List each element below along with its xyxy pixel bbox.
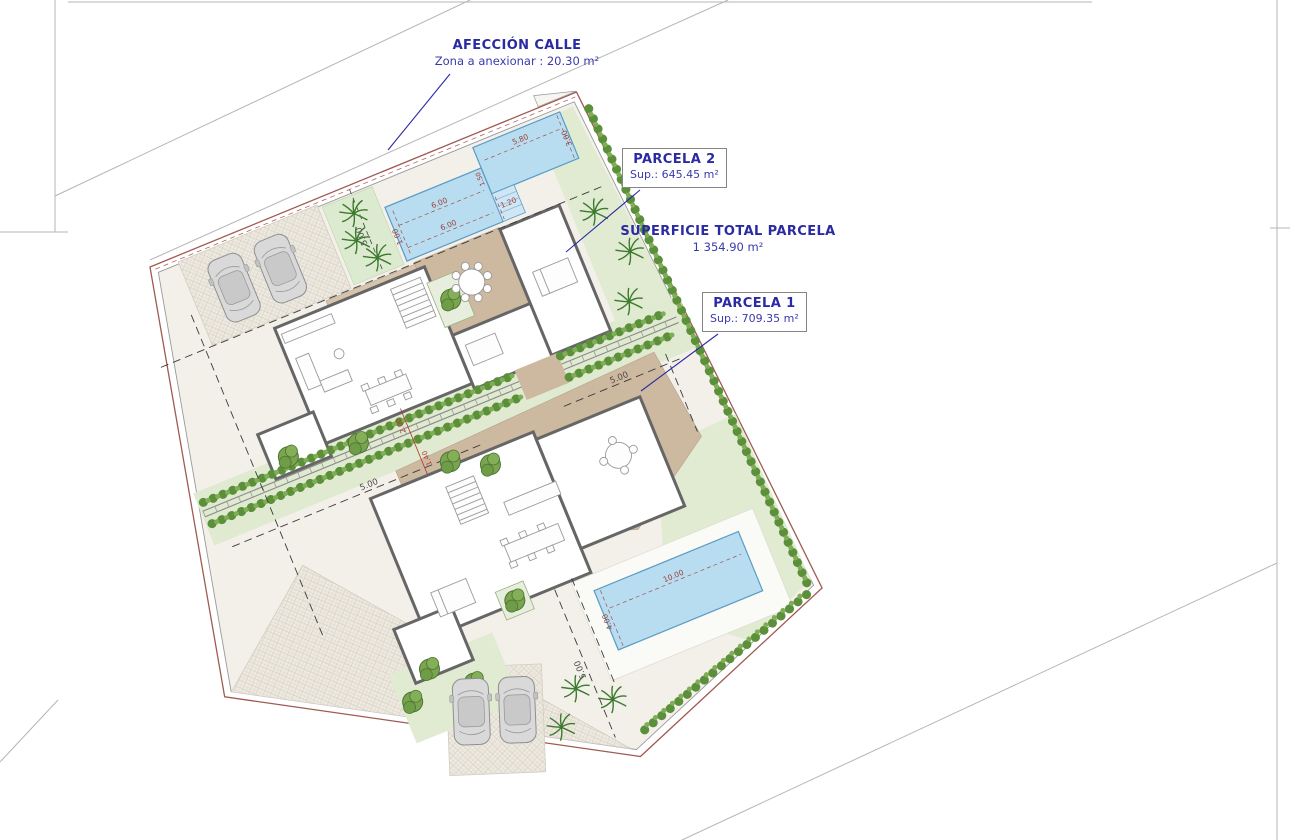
site-plot: 5.00 5.00 5.00 5.00 6.00 6.00 1.00 5.80 … [58, 65, 855, 840]
parcela1-area: Sup.: 709.35 m² [710, 312, 799, 326]
site-plan-drawing: 5.00 5.00 5.00 5.00 6.00 6.00 1.00 5.80 … [0, 0, 1290, 840]
annotation-parcela1-box: PARCELA 1 Sup.: 709.35 m² [702, 292, 807, 332]
parcela2-area: Sup.: 645.45 m² [630, 168, 719, 182]
annotation-parcela2-box: PARCELA 2 Sup.: 645.45 m² [622, 148, 727, 188]
parcela1-title: PARCELA 1 [710, 296, 799, 312]
site-plan-canvas: 5.00 5.00 5.00 5.00 6.00 6.00 1.00 5.80 … [0, 0, 1290, 840]
parcela2-title: PARCELA 2 [630, 152, 719, 168]
car-icon [449, 678, 494, 746]
car-icon [495, 676, 540, 744]
